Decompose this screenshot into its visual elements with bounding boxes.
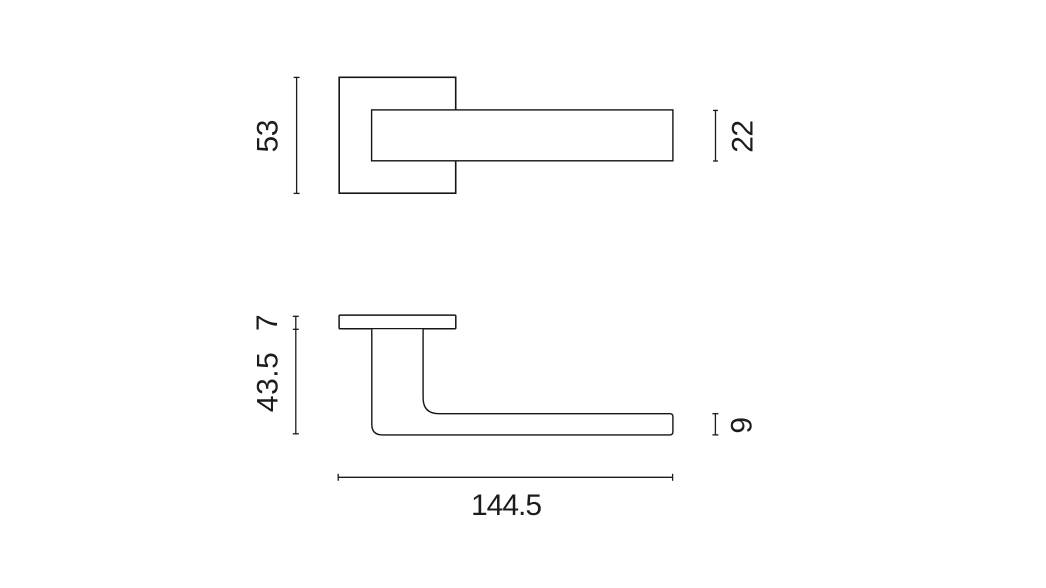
svg-text:144.5: 144.5 bbox=[471, 489, 541, 522]
svg-text:22: 22 bbox=[727, 120, 760, 152]
svg-text:43.5: 43.5 bbox=[251, 352, 284, 412]
svg-text:7: 7 bbox=[251, 314, 284, 331]
svg-text:53: 53 bbox=[251, 120, 284, 152]
svg-text:9: 9 bbox=[725, 417, 758, 434]
